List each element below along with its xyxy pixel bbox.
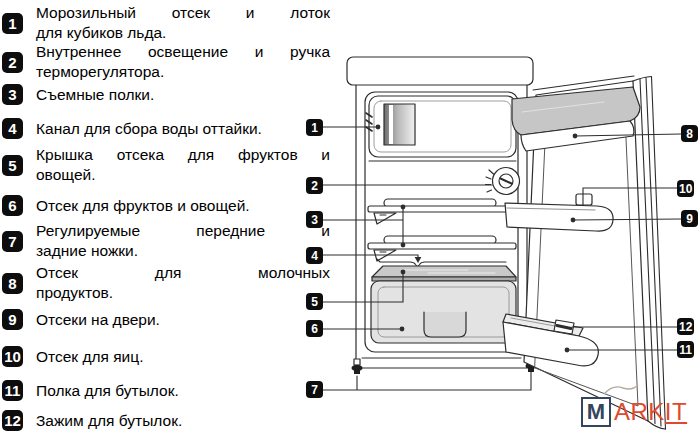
leader-7 — [323, 372, 531, 390]
callout-8: 8 — [681, 125, 698, 142]
egg-insert — [576, 194, 592, 205]
bottle-clamp — [554, 320, 574, 334]
callout-2: 2 — [306, 177, 323, 194]
callout-5: 5 — [306, 293, 323, 310]
callout-10: 10 — [677, 180, 694, 197]
watermark-text: ARKIT — [614, 397, 687, 426]
callout-6: 6 — [306, 320, 323, 337]
ice-tray — [384, 104, 415, 145]
callout-12: 12 — [677, 318, 694, 335]
watermark: M ARKIT — [581, 397, 687, 427]
callout-9: 9 — [681, 210, 698, 227]
crisper-drawer — [371, 281, 516, 343]
watermark-m-logo: M — [581, 397, 611, 427]
crisper-cover — [372, 266, 516, 281]
manual-page: 1 Морозильный отсек и лоток для кубиков … — [0, 0, 700, 436]
callout-11: 11 — [677, 341, 694, 358]
worktop — [347, 57, 533, 85]
refrigerator-diagram — [0, 0, 700, 436]
callout-1: 1 — [306, 119, 323, 136]
callout-4: 4 — [306, 247, 323, 264]
callout-7: 7 — [306, 381, 323, 398]
callout-3: 3 — [306, 211, 323, 228]
crisper-handle — [424, 312, 466, 337]
